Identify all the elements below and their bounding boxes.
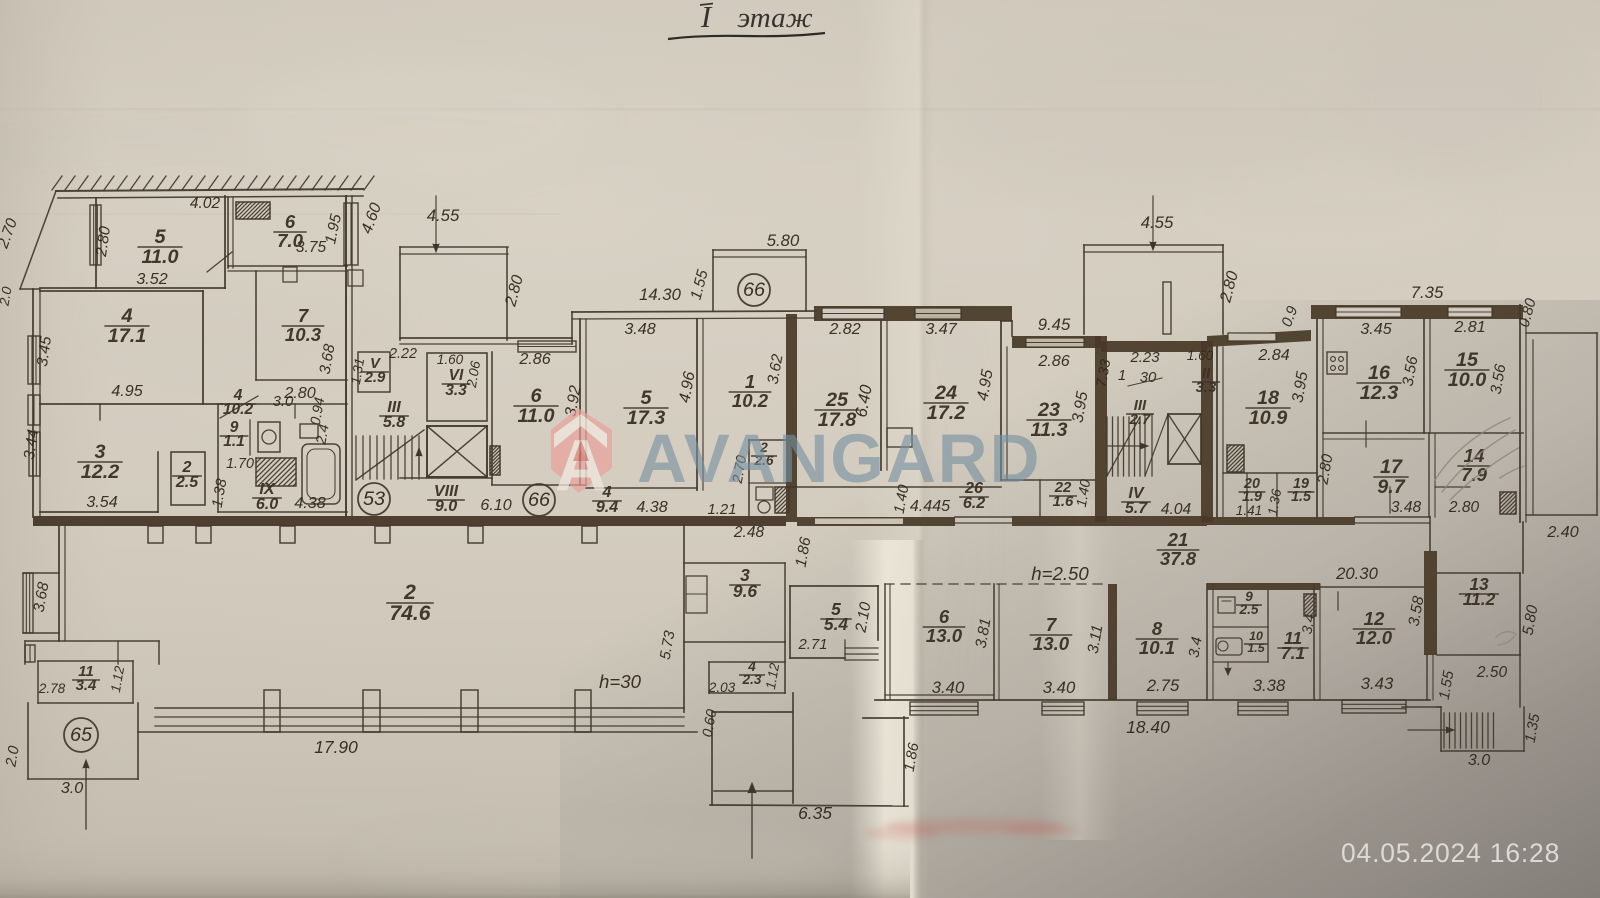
svg-text:3.52: 3.52 [136, 270, 167, 288]
svg-text:3.0: 3.0 [1468, 751, 1490, 769]
svg-text:15: 15 [1456, 349, 1479, 371]
svg-text:2.84: 2.84 [1257, 346, 1289, 364]
svg-text:2.7: 2.7 [1129, 412, 1151, 428]
svg-text:3.47: 3.47 [925, 320, 957, 338]
svg-text:6: 6 [530, 385, 542, 407]
svg-text:3.45: 3.45 [1360, 320, 1391, 338]
svg-text:4.445: 4.445 [910, 497, 950, 515]
svg-text:10.3: 10.3 [285, 324, 322, 345]
svg-text:1.60: 1.60 [1187, 348, 1214, 363]
svg-text:10.1: 10.1 [1139, 637, 1175, 658]
svg-text:3.48: 3.48 [1391, 499, 1422, 516]
svg-text:2.78: 2.78 [38, 681, 66, 696]
svg-text:6.0: 6.0 [256, 495, 278, 513]
svg-text:5.80: 5.80 [767, 231, 800, 250]
svg-text:20.30: 20.30 [1335, 564, 1378, 583]
svg-text:18.40: 18.40 [1126, 717, 1170, 737]
svg-text:9.45: 9.45 [1038, 315, 1071, 334]
svg-text:5.7: 5.7 [1125, 499, 1148, 517]
svg-text:11.2: 11.2 [1463, 589, 1496, 609]
svg-text:2.82: 2.82 [828, 320, 860, 338]
svg-text:3.4: 3.4 [76, 678, 97, 694]
svg-text:10.2: 10.2 [223, 401, 254, 418]
svg-text:1.1: 1.1 [223, 433, 245, 450]
svg-text:17: 17 [1380, 456, 1403, 478]
svg-text:3: 3 [94, 441, 105, 463]
svg-text:6.35: 6.35 [798, 803, 832, 823]
svg-text:18: 18 [1257, 387, 1279, 409]
svg-text:4.02: 4.02 [190, 195, 221, 212]
svg-text:16: 16 [1368, 362, 1391, 384]
svg-text:1: 1 [1118, 368, 1126, 384]
svg-text:7.35: 7.35 [1411, 283, 1444, 302]
svg-text:7: 7 [1046, 614, 1058, 635]
svg-text:AVANGARD: AVANGARD [637, 420, 1041, 497]
svg-text:4.95: 4.95 [111, 382, 142, 400]
svg-text:4.38: 4.38 [636, 498, 667, 516]
svg-text:2.22: 2.22 [388, 346, 417, 362]
svg-text:2.23: 2.23 [1130, 350, 1161, 366]
svg-text:3.48: 3.48 [624, 320, 655, 338]
svg-text:25: 25 [825, 389, 849, 411]
svg-text:5: 5 [154, 226, 166, 248]
svg-text:17.1: 17.1 [108, 325, 147, 347]
svg-text:1.41: 1.41 [1236, 503, 1262, 518]
svg-text:12: 12 [1364, 608, 1385, 629]
svg-text:2.48: 2.48 [733, 524, 765, 541]
svg-text:65: 65 [70, 724, 93, 746]
svg-text:2.71: 2.71 [798, 637, 828, 653]
svg-text:2.86: 2.86 [1037, 352, 1069, 370]
svg-text:2.80: 2.80 [1448, 499, 1480, 516]
svg-text:7: 7 [298, 305, 310, 326]
svg-text:10.9: 10.9 [1249, 407, 1288, 429]
svg-text:66: 66 [743, 279, 765, 301]
svg-text:3.0: 3.0 [273, 394, 294, 410]
svg-text:2.50: 2.50 [1476, 664, 1508, 681]
svg-text:1.21: 1.21 [708, 502, 737, 518]
svg-text:5: 5 [640, 387, 652, 409]
svg-text:2.3: 2.3 [742, 672, 762, 687]
svg-text:13.0: 13.0 [926, 625, 963, 646]
svg-text:1.6: 1.6 [1053, 494, 1074, 510]
svg-text:30: 30 [1140, 370, 1157, 386]
svg-text:3.3: 3.3 [1196, 380, 1217, 396]
svg-text:23: 23 [1037, 399, 1060, 421]
svg-text:4.38: 4.38 [294, 494, 325, 512]
svg-text:1.5: 1.5 [1247, 641, 1265, 655]
svg-text:10.0: 10.0 [1448, 369, 1487, 391]
svg-text:8: 8 [1152, 618, 1163, 639]
svg-text:4.55: 4.55 [1141, 213, 1174, 232]
svg-text:11.0: 11.0 [141, 246, 178, 268]
svg-text:04.05.2024 16:28: 04.05.2024 16:28 [1341, 838, 1560, 868]
svg-text:1.5: 1.5 [1291, 489, 1312, 505]
svg-text:9.6: 9.6 [733, 581, 758, 601]
svg-text:2.86: 2.86 [518, 350, 550, 368]
svg-text:7.1: 7.1 [1281, 643, 1305, 663]
svg-text:3.40: 3.40 [932, 678, 965, 697]
svg-text:24: 24 [934, 382, 957, 404]
svg-text:3.40: 3.40 [1043, 678, 1076, 697]
svg-text:12.3: 12.3 [1360, 382, 1399, 404]
svg-text:2.40: 2.40 [1546, 523, 1578, 541]
svg-text:6: 6 [285, 211, 296, 232]
svg-text:17.90: 17.90 [314, 737, 358, 757]
svg-text:12.2: 12.2 [81, 461, 120, 483]
svg-text:2: 2 [403, 581, 416, 604]
svg-text:2.5: 2.5 [175, 473, 199, 491]
svg-text:1.60: 1.60 [437, 352, 464, 367]
svg-text:3.38: 3.38 [1253, 676, 1286, 695]
svg-text:6: 6 [939, 606, 950, 627]
svg-text:66: 66 [528, 489, 550, 511]
svg-text:14: 14 [1464, 445, 1485, 466]
svg-text:14.30: 14.30 [639, 285, 681, 304]
svg-text:2.75: 2.75 [1146, 676, 1180, 695]
svg-text:h=2.50: h=2.50 [1031, 563, 1089, 584]
svg-text:21: 21 [1167, 529, 1189, 550]
svg-text:3.54: 3.54 [86, 493, 117, 511]
svg-text:1.70: 1.70 [226, 456, 254, 472]
svg-text:5.4: 5.4 [824, 614, 849, 634]
svg-text:A: A [555, 426, 607, 506]
svg-text:9.0: 9.0 [435, 497, 457, 515]
svg-text:13.0: 13.0 [1033, 633, 1070, 654]
svg-text:4.55: 4.55 [427, 206, 460, 225]
svg-text:9.7: 9.7 [1377, 476, 1405, 498]
svg-text:11.0: 11.0 [517, 405, 554, 427]
svg-text:4: 4 [120, 305, 132, 327]
svg-text:1: 1 [745, 371, 755, 392]
svg-text:2.5: 2.5 [1239, 602, 1259, 617]
svg-text:37.8: 37.8 [1160, 548, 1197, 569]
svg-text:2.81: 2.81 [1453, 318, 1485, 336]
svg-text:2.9: 2.9 [364, 370, 386, 386]
svg-text:3.0: 3.0 [61, 779, 83, 797]
svg-text:53: 53 [363, 488, 385, 510]
svg-text:h=30: h=30 [599, 671, 642, 692]
svg-text:этаж: этаж [737, 2, 812, 34]
svg-text:6.10: 6.10 [480, 496, 511, 514]
svg-text:10.2: 10.2 [732, 390, 769, 411]
svg-text:12.0: 12.0 [1356, 627, 1393, 648]
svg-text:3.43: 3.43 [1361, 674, 1394, 693]
svg-text:74.6: 74.6 [389, 602, 430, 625]
svg-text:4.04: 4.04 [1161, 501, 1192, 518]
svg-text:2.03: 2.03 [708, 680, 736, 695]
svg-text:5.8: 5.8 [383, 413, 405, 431]
